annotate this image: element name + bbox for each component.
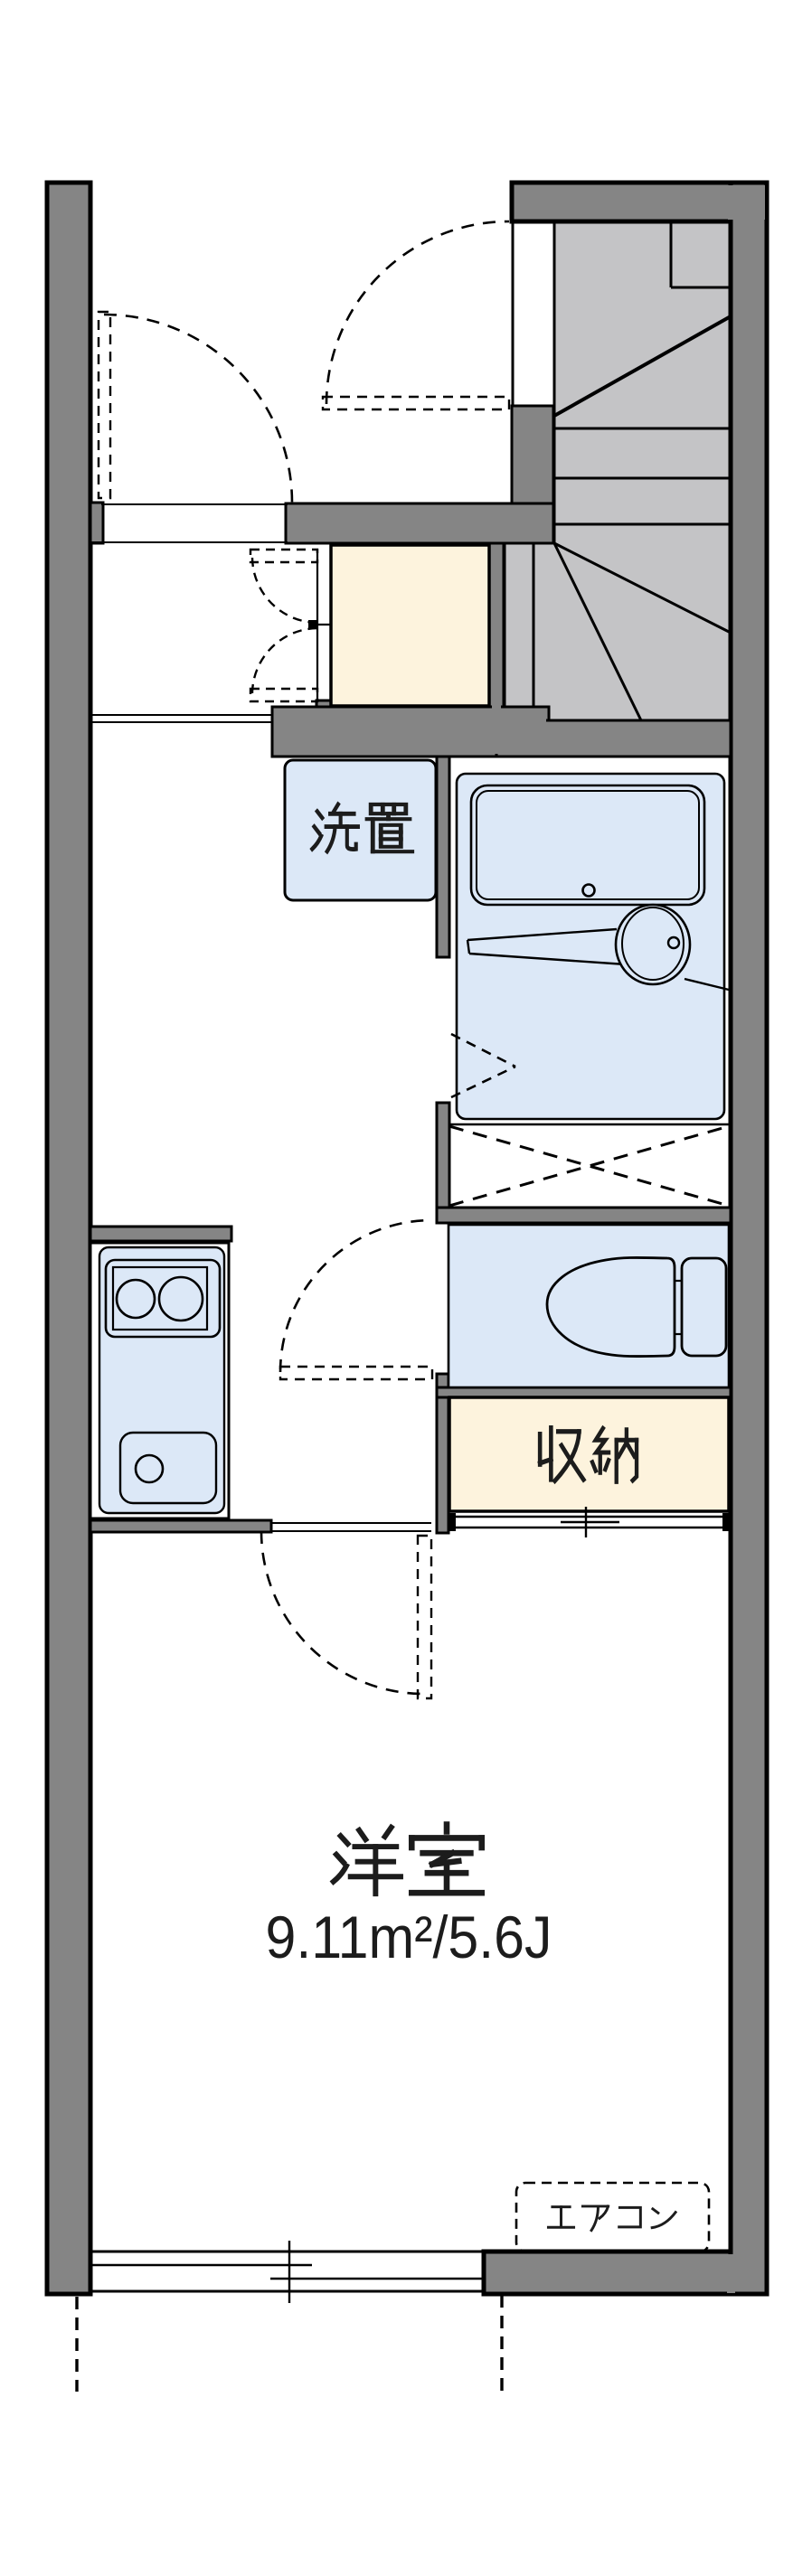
svg-text:9.11m²/5.6J: 9.11m²/5.6J — [266, 1904, 552, 1970]
